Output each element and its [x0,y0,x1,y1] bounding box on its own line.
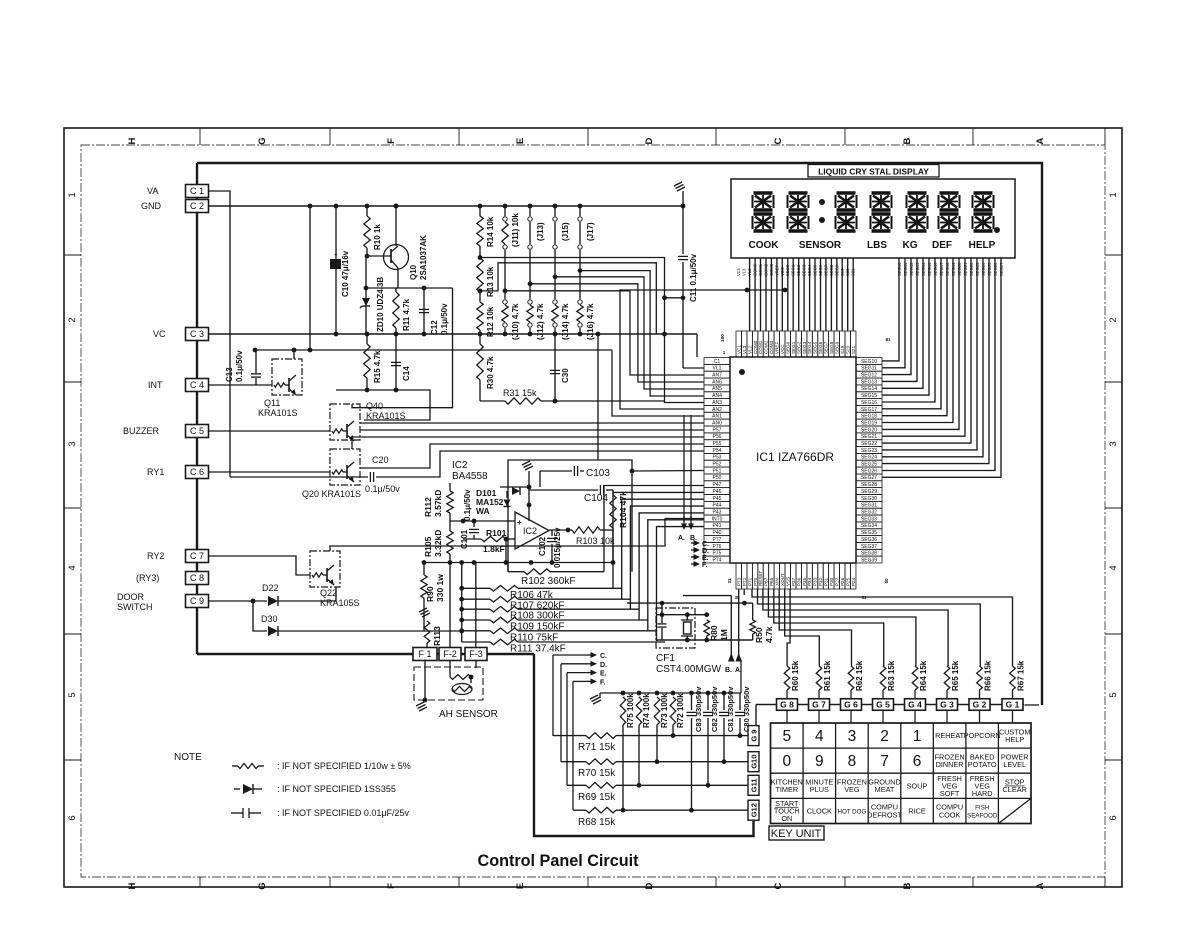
svg-text:2: 2 [67,317,78,322]
svg-text:AN6: AN6 [712,379,722,385]
svg-text:SEG33: SEG33 [861,516,877,522]
svg-text:(J17): (J17) [586,222,595,241]
svg-text:SEG31: SEG31 [861,503,877,509]
svg-text:3: 3 [67,441,78,446]
svg-text:POTATO: POTATO [968,760,997,769]
svg-text:G11: G11 [750,778,759,792]
svg-text:C103: C103 [586,468,610,479]
svg-text:A.: A. [678,535,685,542]
svg-text:3: 3 [848,728,857,745]
svg-text:: IF NOT SPECIFIED 0.01μF/25v: : IF NOT SPECIFIED 0.01μF/25v [277,808,410,818]
svg-text:HELP: HELP [1005,735,1024,744]
svg-text:P26: P26 [840,577,845,586]
svg-text:C 9: C 9 [190,596,204,606]
svg-text:Q10: Q10 [409,264,418,280]
svg-text:R62 15k: R62 15k [855,660,864,691]
svg-text:SEG1: SEG1 [791,341,796,354]
svg-text:G: G [257,882,268,889]
svg-text:R50: R50 [754,627,764,643]
svg-text:7: 7 [880,753,889,770]
svg-text:R11 4.7k: R11 4.7k [402,298,411,331]
svg-text:H: H [127,882,138,889]
svg-text:SEG27: SEG27 [999,262,1004,276]
svg-text:SEG18: SEG18 [945,262,950,276]
svg-text:REHEAT: REHEAT [935,731,965,740]
svg-text:(J13): (J13) [536,222,545,241]
svg-text:9: 9 [815,753,824,770]
svg-text:S21: S21 [851,268,856,276]
svg-text:50: 50 [884,578,889,584]
svg-text:Q40: Q40 [366,401,383,411]
svg-text:R103 10k: R103 10k [576,536,615,546]
svg-text:C12: C12 [430,320,439,335]
svg-text:R70 15k: R70 15k [578,768,616,779]
svg-text:SEG0: SEG0 [785,264,790,276]
svg-text:4: 4 [1108,565,1119,570]
svg-text:R67 15k: R67 15k [1017,660,1026,691]
svg-text:SEG8: SEG8 [829,341,834,354]
svg-text:B: B [902,882,913,889]
svg-text:0: 0 [782,753,791,770]
svg-text:SEG20: SEG20 [957,262,962,276]
svg-text:R12 10k: R12 10k [486,306,495,337]
svg-text:SEG19: SEG19 [951,262,956,276]
svg-text:INT: INT [148,380,163,390]
svg-text:SEG4: SEG4 [807,264,812,276]
svg-text:P41: P41 [713,523,722,529]
svg-text:A: A [1035,137,1046,144]
svg-text:5: 5 [782,728,791,745]
svg-text:P55: P55 [713,441,722,447]
svg-text:SEG35: SEG35 [861,530,877,536]
svg-text:: IF NOT SPECIFIED 1/10w ± 5%: : IF NOT SPECIFIED 1/10w ± 5% [277,761,411,771]
svg-text:SEG26: SEG26 [993,262,998,276]
svg-text:P51: P51 [713,468,722,474]
svg-text:P50: P50 [713,475,722,481]
svg-text:KRA101S: KRA101S [366,411,406,421]
svg-text:VEG: VEG [844,785,860,794]
svg-text:VL2: VL2 [747,268,752,276]
svg-text:C: C [773,137,784,144]
svg-text:SEG12: SEG12 [909,262,914,276]
svg-text:D.: D. [600,662,607,669]
svg-text:SEG17: SEG17 [861,407,877,413]
svg-text:S20: S20 [845,345,850,354]
svg-text:SEG32: SEG32 [861,510,877,516]
svg-text:4: 4 [67,565,78,570]
svg-text:R66 15k: R66 15k [984,660,993,691]
svg-text:R31 15k: R31 15k [503,388,537,398]
svg-text:P31: P31 [824,577,829,586]
svg-text:4.7k: 4.7k [764,626,774,643]
svg-text:(J15): (J15) [561,222,570,241]
svg-text:31: 31 [727,578,732,584]
svg-text:SEG3: SEG3 [802,264,807,276]
svg-text:SEG2: SEG2 [796,264,801,276]
svg-text:INT0: INT0 [712,516,723,522]
svg-text:(J14) 4.7k: (J14) 4.7k [561,303,570,340]
svg-text:VA: VA [147,186,158,196]
svg-text:+: + [517,518,522,527]
svg-text:F.: F. [702,562,708,569]
svg-text:VL3: VL3 [742,268,747,276]
svg-text:COM1: COM1 [758,340,763,354]
svg-text:COM1: COM1 [758,263,763,276]
svg-text:COM3: COM3 [769,340,774,354]
svg-text:R64 15k: R64 15k [919,660,928,691]
svg-text:P43: P43 [713,510,722,516]
svg-text:SEG11: SEG11 [861,366,877,372]
svg-text:P71: P71 [747,577,752,586]
svg-text:SEG6: SEG6 [818,341,823,354]
svg-text:D.: D. [702,548,709,555]
svg-text:CST4.00MGW: CST4.00MGW [656,664,722,675]
svg-text:F 1: F 1 [418,649,431,659]
svg-text:B: B [902,137,913,144]
svg-text:AN7: AN7 [712,373,722,379]
svg-text:R63 15k: R63 15k [887,660,896,691]
svg-text:VC1: VC1 [736,267,741,276]
svg-text:TIMER: TIMER [775,785,798,794]
svg-text:6: 6 [67,815,78,820]
svg-text:SEG20: SEG20 [861,427,877,433]
svg-text:R10 1k: R10 1k [373,224,382,250]
svg-text:2: 2 [880,728,889,745]
svg-text:ON: ON [781,814,792,823]
svg-text:R102 360kF: R102 360kF [521,576,575,587]
svg-text:P45: P45 [713,496,722,502]
svg-text:SEG8: SEG8 [829,264,834,276]
svg-text:G 1: G 1 [1006,700,1020,710]
svg-text:P36: P36 [796,577,801,586]
svg-text:P33: P33 [813,577,818,586]
svg-text:RY1: RY1 [147,467,164,477]
svg-text:(J10) 4.7k: (J10) 4.7k [511,303,520,340]
svg-text:H: H [127,137,138,144]
svg-text:C81 330p50v: C81 330p50v [726,686,735,732]
svg-text:F: F [386,883,397,889]
svg-text:S19: S19 [840,268,845,276]
svg-text:P30: P30 [829,577,834,586]
svg-text:AN0: AN0 [712,420,722,426]
svg-text:P37: P37 [791,577,796,586]
svg-text:D30: D30 [261,614,278,624]
svg-text:F-2: F-2 [443,649,457,659]
svg-text:3.32kD: 3.32kD [433,530,443,557]
svg-text:SEG3: SEG3 [802,341,807,354]
svg-text:P34: P34 [807,577,812,586]
svg-text:+: + [334,253,338,259]
svg-text:C10 47μ/16v: C10 47μ/16v [341,250,350,297]
svg-text:P40: P40 [713,530,722,536]
svg-text:SEG36: SEG36 [861,537,877,543]
svg-text:(RY3): (RY3) [136,573,159,583]
svg-text:C11 0.1μ/50v: C11 0.1μ/50v [689,253,698,302]
svg-text:SEG14: SEG14 [921,262,926,276]
svg-text:P25: P25 [845,577,850,586]
svg-text:C 7: C 7 [190,551,204,561]
svg-text:E.: E. [702,555,709,562]
svg-text:SEG9: SEG9 [835,341,840,354]
svg-text:P54: P54 [713,448,722,454]
svg-text:R104 47k: R104 47k [618,491,628,528]
svg-text:R90: R90 [425,586,435,602]
svg-text:VC1: VC1 [736,345,741,354]
svg-text:SENSOR: SENSOR [799,240,842,251]
svg-text:G 9: G 9 [750,730,759,742]
svg-text:SEG13: SEG13 [861,379,877,385]
svg-text:G 2: G 2 [973,700,987,710]
svg-text:R14 10k: R14 10k [486,216,495,247]
svg-text:RESET: RESET [758,570,763,586]
svg-text:KRA105S: KRA105S [320,598,360,608]
svg-text:RICE: RICE [908,807,926,816]
svg-text:330 1w: 330 1w [435,574,445,602]
svg-text:VL2: VL2 [747,345,752,354]
svg-text:R30 4.7k: R30 4.7k [486,356,495,389]
svg-text:CF1: CF1 [656,653,675,664]
svg-text:DINNER: DINNER [936,760,964,769]
svg-text:VREF: VREF [775,342,780,354]
svg-text:DOOR: DOOR [117,592,145,602]
svg-text:SOFT: SOFT [940,789,960,798]
svg-text:VSS: VSS [785,577,790,586]
svg-text:VC: VC [153,329,166,339]
svg-text:(J12) 4.7k: (J12) 4.7k [536,303,545,340]
svg-text:C.: C. [702,541,709,548]
svg-text:ZD10 UDZ4.3B: ZD10 UDZ4.3B [376,277,385,332]
svg-text:P35: P35 [802,577,807,586]
svg-text:1: 1 [913,728,922,745]
svg-text:AN5: AN5 [712,386,722,392]
svg-text:R101: R101 [486,528,507,538]
svg-text:SEG28: SEG28 [861,482,877,488]
svg-text:C 4: C 4 [190,380,204,390]
svg-text:P67: P67 [764,577,769,586]
svg-text:COM2: COM2 [764,263,769,276]
svg-text:P52: P52 [713,462,722,468]
svg-text:P75: P75 [713,551,722,557]
svg-text:SOUP: SOUP [907,781,928,790]
svg-text:SEG34: SEG34 [861,523,877,529]
svg-text:P56: P56 [713,434,722,440]
svg-text:P44: P44 [713,503,722,509]
svg-text:SEG9: SEG9 [834,264,839,276]
svg-text:KG: KG [903,240,918,251]
svg-text:LIQUID CRY STAL DISPLAY: LIQUID CRY STAL DISPLAY [818,167,929,177]
svg-text:Control Panel Circuit: Control Panel Circuit [478,852,640,870]
svg-text:POPCORN: POPCORN [964,731,1001,740]
svg-text:3: 3 [1108,441,1119,446]
svg-text:A: A [1035,882,1046,889]
svg-text:C 5: C 5 [190,426,204,436]
svg-text:C101: C101 [460,529,469,549]
svg-text:G: G [257,137,268,144]
svg-text:SEG22: SEG22 [861,441,877,447]
svg-text:SEG18: SEG18 [861,414,877,420]
svg-text:RY2: RY2 [147,551,164,561]
svg-text:S19: S19 [840,345,845,354]
svg-text:SEG21: SEG21 [963,262,968,276]
svg-text:SEG39: SEG39 [861,557,877,563]
svg-text:SEG26: SEG26 [861,468,877,474]
svg-text:BA4558: BA4558 [452,471,488,482]
svg-text:P27: P27 [835,577,840,586]
svg-text:G 7: G 7 [812,700,826,710]
svg-text:WA: WA [476,506,490,516]
svg-text:SEG4: SEG4 [807,341,812,354]
svg-text:SEG30: SEG30 [861,496,877,502]
svg-text:IC2: IC2 [452,460,468,471]
svg-text:SEG5: SEG5 [813,341,818,354]
svg-text:R71 15k: R71 15k [578,742,616,753]
svg-text:C20: C20 [372,455,389,465]
svg-text:HELP: HELP [969,240,996,251]
svg-text:R60 15k: R60 15k [791,660,800,691]
svg-text:G 6: G 6 [844,700,858,710]
svg-text:Q11: Q11 [264,398,280,408]
svg-text:P32: P32 [818,577,823,586]
svg-text:VREF: VREF [774,264,779,276]
svg-text:C 3: C 3 [190,329,204,339]
svg-text:0.1μ/50v: 0.1μ/50v [440,303,449,335]
svg-text:SEG14: SEG14 [861,386,877,392]
svg-text:E: E [515,883,526,889]
svg-text:SEG5: SEG5 [813,264,818,276]
svg-text:R13 10k: R13 10k [486,266,495,297]
svg-text:PLUS: PLUS [810,785,829,794]
svg-text:LEVEL: LEVEL [1003,760,1026,769]
svg-text:G 8: G 8 [780,700,794,710]
svg-text:R112: R112 [423,497,433,517]
svg-text:SEG13: SEG13 [915,262,920,276]
svg-text:(J11) 10k: (J11) 10k [511,213,520,247]
svg-text:BUZZER: BUZZER [123,426,160,436]
svg-text:SEG38: SEG38 [861,551,877,557]
svg-text:SEG25: SEG25 [861,462,877,468]
svg-text:P46: P46 [713,489,722,495]
svg-text:C.: C. [600,653,607,660]
svg-text:P77: P77 [713,537,722,543]
svg-text:F-3: F-3 [469,649,483,659]
svg-text:R80: R80 [709,625,719,641]
svg-text:VL3: VL3 [742,345,747,354]
svg-text:0.1μ/50v: 0.1μ/50v [463,489,472,521]
svg-text:C104: C104 [584,493,608,504]
svg-text:SEG11: SEG11 [903,262,908,276]
svg-text:COM0: COM0 [753,263,758,276]
svg-text:LBS: LBS [867,240,887,251]
svg-text:COOK: COOK [749,240,780,251]
svg-text:P24: P24 [851,577,856,586]
svg-text:P57: P57 [713,427,722,433]
svg-text:HARD: HARD [972,789,993,798]
svg-text:AN1: AN1 [712,414,722,420]
svg-text:HOT DOG: HOT DOG [838,809,867,816]
svg-text:SEG17: SEG17 [939,262,944,276]
svg-text:VCC: VCC [780,344,785,354]
svg-text:R105: R105 [423,536,433,557]
svg-text:2SA1037AK: 2SA1037AK [419,235,428,280]
svg-text:C 2: C 2 [190,201,204,211]
svg-text:SEG16: SEG16 [933,262,938,276]
svg-text:2: 2 [1108,317,1119,322]
svg-text:: IF NOT SPECIFIED 1SS355: : IF NOT SPECIFIED 1SS355 [277,784,396,794]
svg-text:P70: P70 [753,577,758,586]
svg-text:SEG12: SEG12 [861,373,877,379]
svg-text:100: 100 [720,334,725,342]
svg-text:SEG7: SEG7 [824,341,829,354]
svg-text:SEG2: SEG2 [796,341,801,354]
svg-text:C102: C102 [538,536,547,556]
svg-text:(J16) 4.7k: (J16) 4.7k [586,303,595,340]
svg-text:1.8kF: 1.8kF [483,544,505,554]
svg-text:SWITCH: SWITCH [117,602,153,612]
svg-text:0.1μ/50v: 0.1μ/50v [365,484,400,494]
svg-text:1M: 1M [719,629,729,641]
svg-text:GND: GND [141,201,162,211]
svg-text:B.: B. [725,667,732,674]
svg-text:R65 15k: R65 15k [951,660,960,691]
svg-text:R73 100k: R73 100k [660,693,669,728]
svg-text:SEG1: SEG1 [791,264,796,276]
svg-text:SEG7: SEG7 [823,264,828,276]
svg-text:SEG24: SEG24 [861,455,877,461]
svg-text:G 3: G 3 [940,700,954,710]
svg-text:XIN: XIN [775,578,780,586]
svg-text:SEG27: SEG27 [861,475,877,481]
svg-text:5: 5 [1108,692,1119,697]
svg-text:Q22: Q22 [320,588,337,598]
svg-text:F.: F. [600,679,606,686]
svg-text:R61 15k: R61 15k [823,660,832,691]
svg-text:C30: C30 [561,368,570,383]
svg-text:P66: P66 [769,577,774,586]
svg-text:P73: P73 [736,577,741,586]
svg-text:SEG24: SEG24 [981,262,986,276]
svg-text:F: F [386,138,397,144]
svg-text:D: D [644,137,655,144]
svg-text:C 1: C 1 [190,186,204,196]
svg-text:1: 1 [1108,192,1119,197]
svg-text:SEG19: SEG19 [861,420,877,426]
svg-text:R68 15k: R68 15k [578,817,616,828]
svg-text:P72: P72 [742,577,747,586]
svg-text:VL1: VL1 [713,366,722,372]
svg-text:SEG0: SEG0 [785,341,790,354]
svg-text:COM3: COM3 [769,263,774,276]
svg-text:KRA101S: KRA101S [258,408,298,418]
svg-text:SEG25: SEG25 [987,262,992,276]
svg-text:COM0: COM0 [753,340,758,354]
svg-text:P74: P74 [713,557,722,563]
svg-text:D22: D22 [262,583,279,593]
svg-text:C83 330p50v: C83 330p50v [694,686,703,732]
svg-text:SEG15: SEG15 [861,393,877,399]
svg-text:0.1μ/50v: 0.1μ/50v [235,350,244,382]
svg-text:SEG23: SEG23 [861,448,877,454]
svg-text:AN3: AN3 [712,400,722,406]
svg-text:XOUT: XOUT [780,573,785,586]
svg-text:VCC: VCC [780,267,785,276]
svg-text:1: 1 [67,192,78,197]
svg-text:R15 4.7k: R15 4.7k [373,350,382,383]
svg-text:KEY UNIT: KEY UNIT [771,828,822,840]
svg-text:6: 6 [913,753,922,770]
svg-text:C 8: C 8 [190,573,204,583]
svg-text:SEG29: SEG29 [861,489,877,495]
svg-text:CLEAR: CLEAR [1003,785,1027,794]
